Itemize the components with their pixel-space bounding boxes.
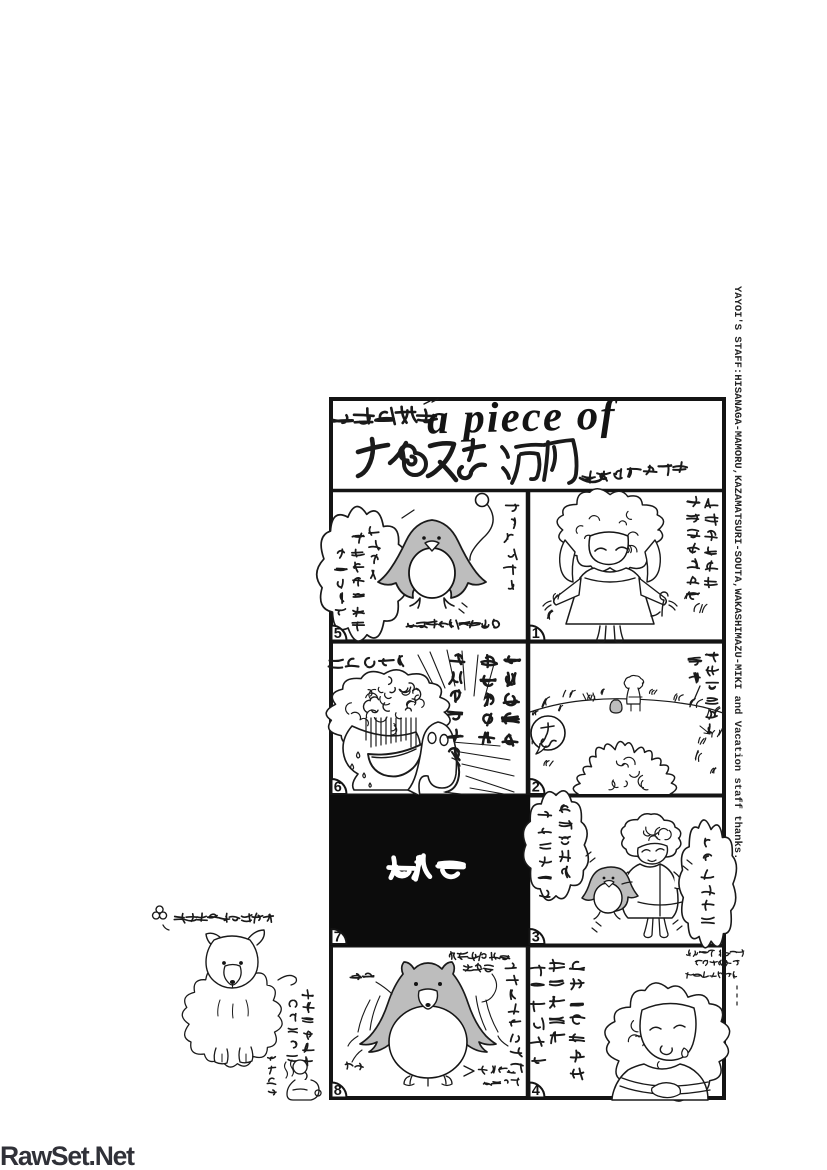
svg-text:8: 8 — [334, 1083, 342, 1099]
svg-text:3: 3 — [532, 930, 540, 946]
svg-text:4: 4 — [532, 1083, 540, 1099]
svg-text:5: 5 — [334, 626, 342, 642]
svg-text:1: 1 — [532, 626, 540, 642]
svg-text:6: 6 — [334, 780, 342, 796]
svg-text:2: 2 — [532, 780, 540, 796]
svg-text:7: 7 — [334, 930, 342, 946]
